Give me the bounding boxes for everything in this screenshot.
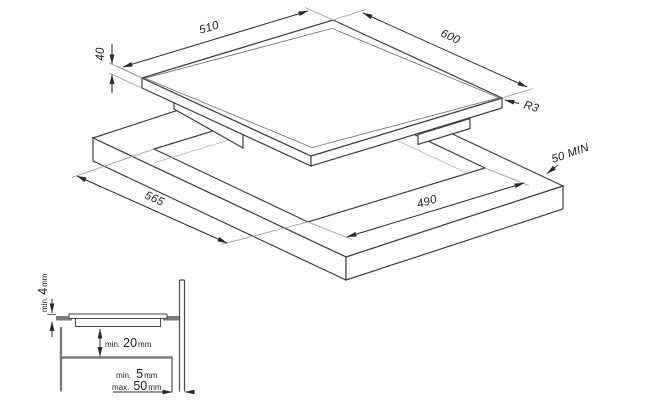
section-glass-top bbox=[69, 314, 167, 319]
dimension-20mm: min.20mm bbox=[100, 329, 152, 357]
dim-510-label: 510 bbox=[198, 19, 221, 36]
dim-4mm-label: min.4mm bbox=[36, 273, 50, 312]
section-wall bbox=[180, 280, 185, 392]
label-value: 50 bbox=[133, 379, 147, 393]
label-unit: mm bbox=[40, 273, 49, 287]
dim-20mm-label: min.20mm bbox=[105, 336, 152, 350]
label-prefix: min. bbox=[116, 371, 131, 380]
label-unit: mm bbox=[138, 340, 152, 349]
label-value: 20 bbox=[123, 336, 137, 350]
dimension-50min: 50 MIN bbox=[547, 142, 591, 174]
dimension-r3: R3 bbox=[505, 99, 540, 115]
leader-line-50min bbox=[547, 165, 558, 174]
label-unit: mm bbox=[148, 383, 162, 392]
label-prefix: max. bbox=[112, 383, 129, 392]
dim-r3-label: R3 bbox=[522, 99, 540, 115]
section-hob-tub bbox=[76, 319, 161, 327]
installation-diagram-svg: 510 600 40 R3 50 MIN bbox=[0, 0, 650, 400]
dim-50min-label: 50 MIN bbox=[550, 142, 591, 166]
leader-line-r3 bbox=[505, 100, 519, 104]
dimension-wall-gap: min.5mm max.50mm bbox=[112, 367, 194, 393]
label-prefix: min. bbox=[40, 297, 49, 312]
label-value: 4 bbox=[36, 288, 50, 295]
label-prefix: min. bbox=[105, 340, 120, 349]
ext-line bbox=[305, 8, 333, 21]
hob-installation-drawing: 510 600 40 R3 50 MIN bbox=[0, 0, 650, 400]
ext-line bbox=[109, 63, 142, 78]
dimension-40: 40 bbox=[95, 44, 142, 93]
cross-section-view: min.4mm min.20mm min.5mm max.50mm bbox=[36, 273, 194, 393]
dim-600-label: 600 bbox=[439, 28, 463, 47]
dim-50mm-label: max.50mm bbox=[112, 379, 162, 393]
isometric-view: 510 600 40 R3 50 MIN bbox=[72, 8, 591, 281]
dimension-4mm: min.4mm bbox=[36, 273, 56, 337]
dim-40-label: 40 bbox=[95, 47, 107, 61]
ext-line bbox=[333, 10, 366, 21]
ext-line bbox=[502, 89, 533, 99]
